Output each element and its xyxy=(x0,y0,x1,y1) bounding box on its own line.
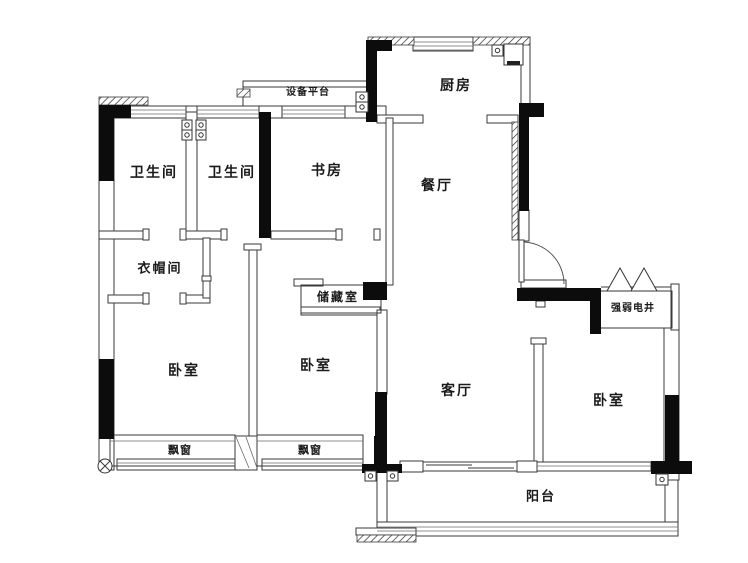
room-label-bay-window-right: 飘窗 xyxy=(298,445,322,456)
room-label-utility-shaft: 强弱电井 xyxy=(611,304,655,314)
room-label-study: 书房 xyxy=(311,164,343,178)
room-label-living: 客厅 xyxy=(441,384,473,398)
room-label-bedroom-left: 卧室 xyxy=(168,364,200,378)
room-label-bathroom-1: 卫生间 xyxy=(130,166,178,180)
room-label-bedroom-right: 卧室 xyxy=(593,394,625,408)
room-label-bedroom-middle: 卧室 xyxy=(300,359,332,373)
room-label-storage: 储藏室 xyxy=(317,291,359,303)
room-label-cloakroom: 衣帽间 xyxy=(137,263,182,276)
floor-plan: 设备平台 厨房 卫生间 卫生间 书房 餐厅 衣帽间 储藏室 强弱电井 卧室 卧室… xyxy=(0,0,748,563)
entry-door-icon xyxy=(519,240,564,284)
room-label-bay-window-left: 飘窗 xyxy=(168,445,192,456)
room-label-dining: 餐厅 xyxy=(421,179,453,193)
drain-icon xyxy=(98,459,112,473)
sliding-door xyxy=(423,462,517,471)
floorplan-canvas xyxy=(0,0,748,563)
room-label-bathroom-2: 卫生间 xyxy=(208,166,256,180)
room-label-balcony: 阳台 xyxy=(526,491,556,504)
shaft-door-icon xyxy=(607,268,657,291)
room-label-equipment-platform: 设备平台 xyxy=(286,88,330,98)
room-label-kitchen: 厨房 xyxy=(440,79,472,93)
kitchen-sink-icon xyxy=(492,44,523,65)
